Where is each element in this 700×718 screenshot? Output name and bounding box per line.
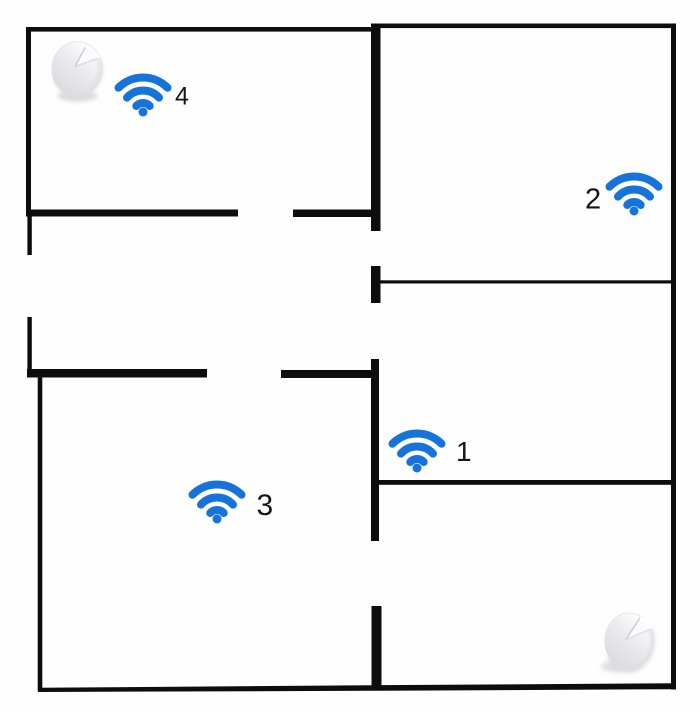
- svg-text:3: 3: [257, 489, 274, 522]
- svg-text:1: 1: [456, 436, 472, 467]
- svg-text:4: 4: [175, 83, 189, 111]
- svg-text:2: 2: [585, 184, 601, 216]
